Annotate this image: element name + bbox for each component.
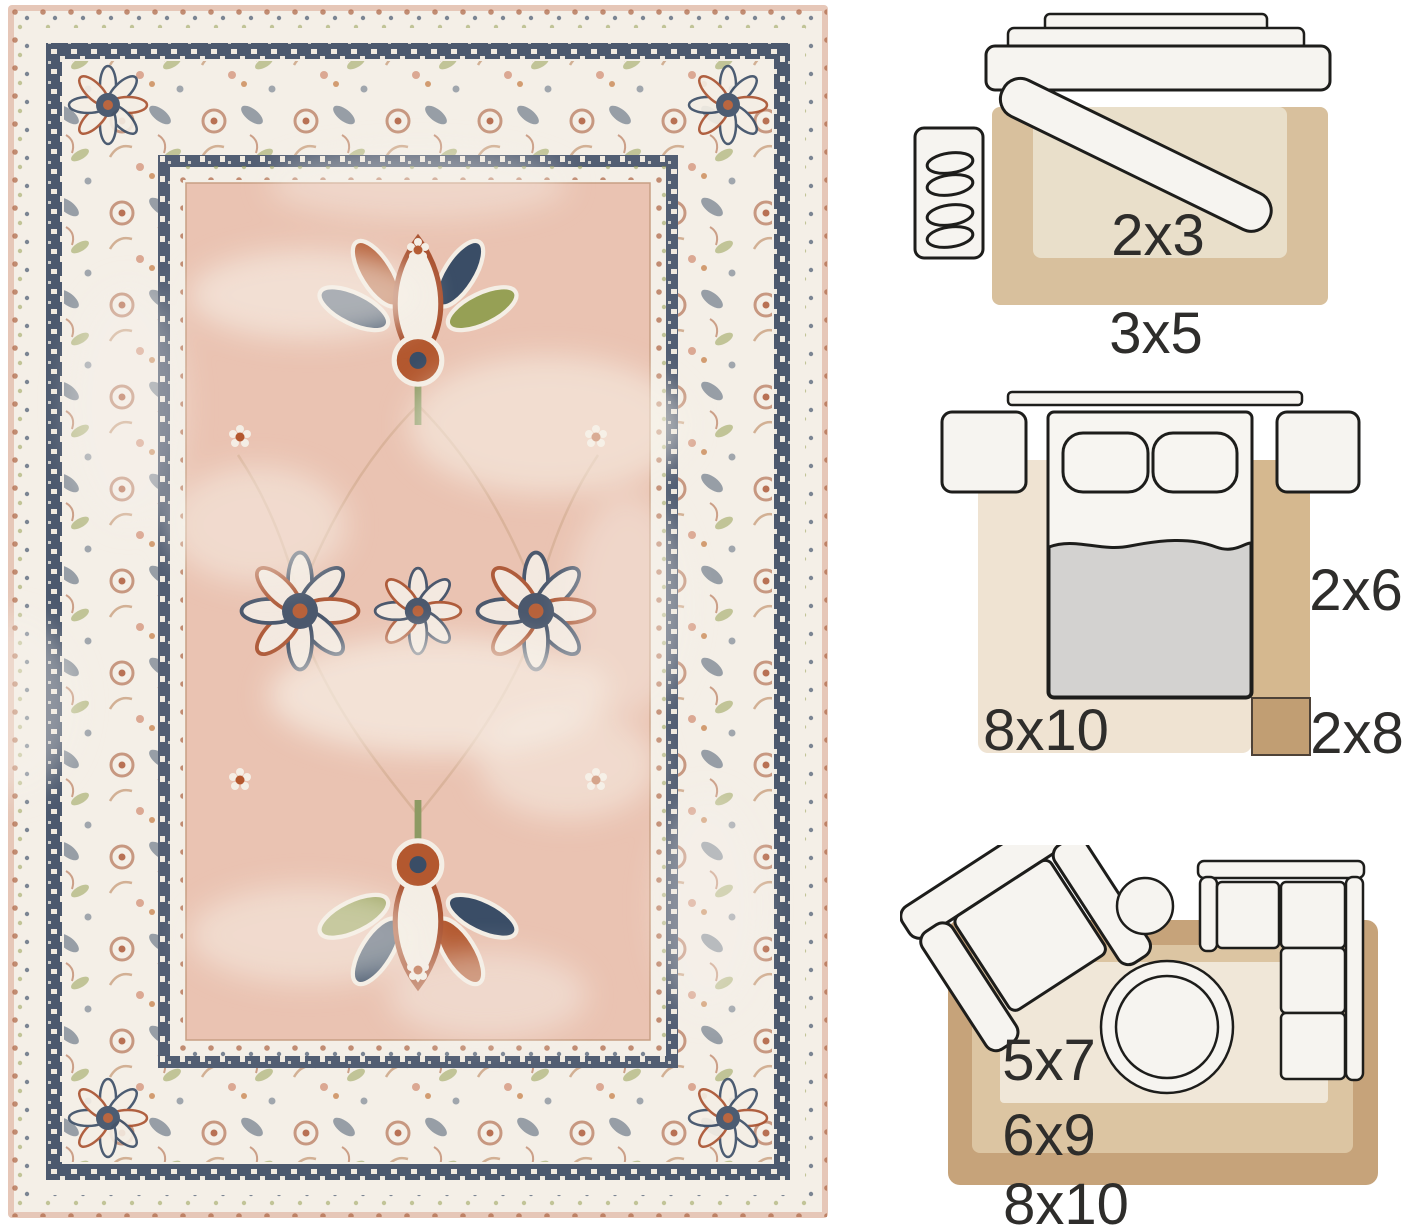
coffee-table-icon	[1101, 961, 1233, 1093]
label-8x10-bedroom: 8x10	[983, 698, 1109, 763]
runner-2x8-extension	[1252, 698, 1310, 755]
rug-corner-rosette	[69, 66, 147, 144]
label-2x6: 2x6	[1309, 558, 1403, 623]
console-table-icon	[986, 14, 1330, 90]
product-image-canvas: 2x3 3x5 8x10 2x6 2x8	[0, 0, 1403, 1231]
nightstand-left-icon	[942, 412, 1026, 492]
rug-corner-rosette	[689, 66, 767, 144]
rug-corner-rosette	[689, 1079, 767, 1157]
runner-2x6	[1252, 460, 1310, 698]
pillow-left	[1063, 433, 1148, 492]
label-2x3: 2x3	[1111, 203, 1205, 268]
headboard-icon	[1008, 392, 1302, 405]
shoe-mat-icon	[915, 128, 983, 258]
size-guide-scene-living-room: 5x7 6x9 8x10	[900, 845, 1403, 1231]
rug-product-photo	[8, 5, 828, 1218]
label-3x5: 3x5	[1109, 301, 1203, 366]
side-table-icon	[1117, 878, 1173, 934]
nightstand-right-icon	[1277, 412, 1359, 492]
size-guide-scene-bedroom: 8x10 2x6 2x8	[900, 375, 1403, 775]
size-guide-scene-entryway: 2x3 3x5	[900, 0, 1403, 372]
label-5x7: 5x7	[1002, 1028, 1096, 1093]
bed-icon	[1048, 412, 1252, 698]
pillow-right	[1153, 433, 1237, 492]
label-6x9: 6x9	[1002, 1103, 1096, 1168]
label-2x8: 2x8	[1310, 701, 1403, 766]
rug-photo-illustration	[8, 5, 828, 1218]
rug-corner-rosette	[69, 1079, 147, 1157]
label-8x10-living: 8x10	[1003, 1172, 1129, 1231]
blanket	[1049, 540, 1251, 697]
